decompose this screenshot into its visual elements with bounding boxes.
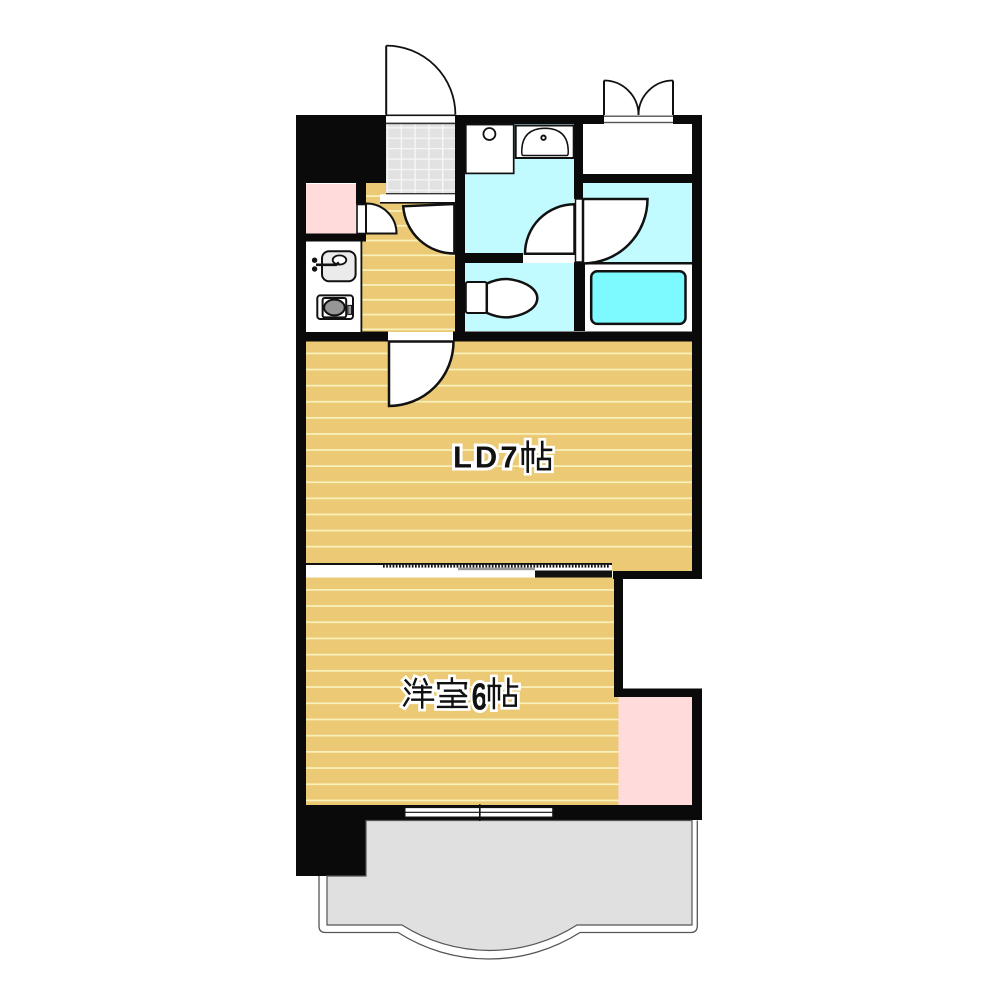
svg-text:LD7: LD7 xyxy=(453,440,521,475)
